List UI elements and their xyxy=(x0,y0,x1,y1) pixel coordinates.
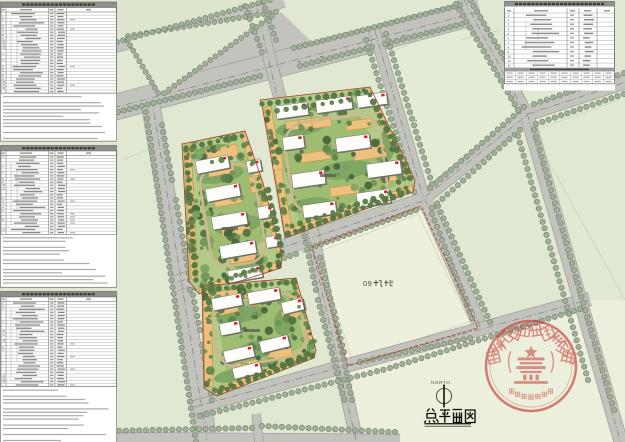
svg-text:11: 11 xyxy=(508,59,511,63)
svg-text:09: 09 xyxy=(363,279,372,288)
svg-text:10: 10 xyxy=(508,55,512,59)
svg-text:NORTH: NORTH xyxy=(431,380,450,385)
svg-text:12: 12 xyxy=(508,64,512,68)
